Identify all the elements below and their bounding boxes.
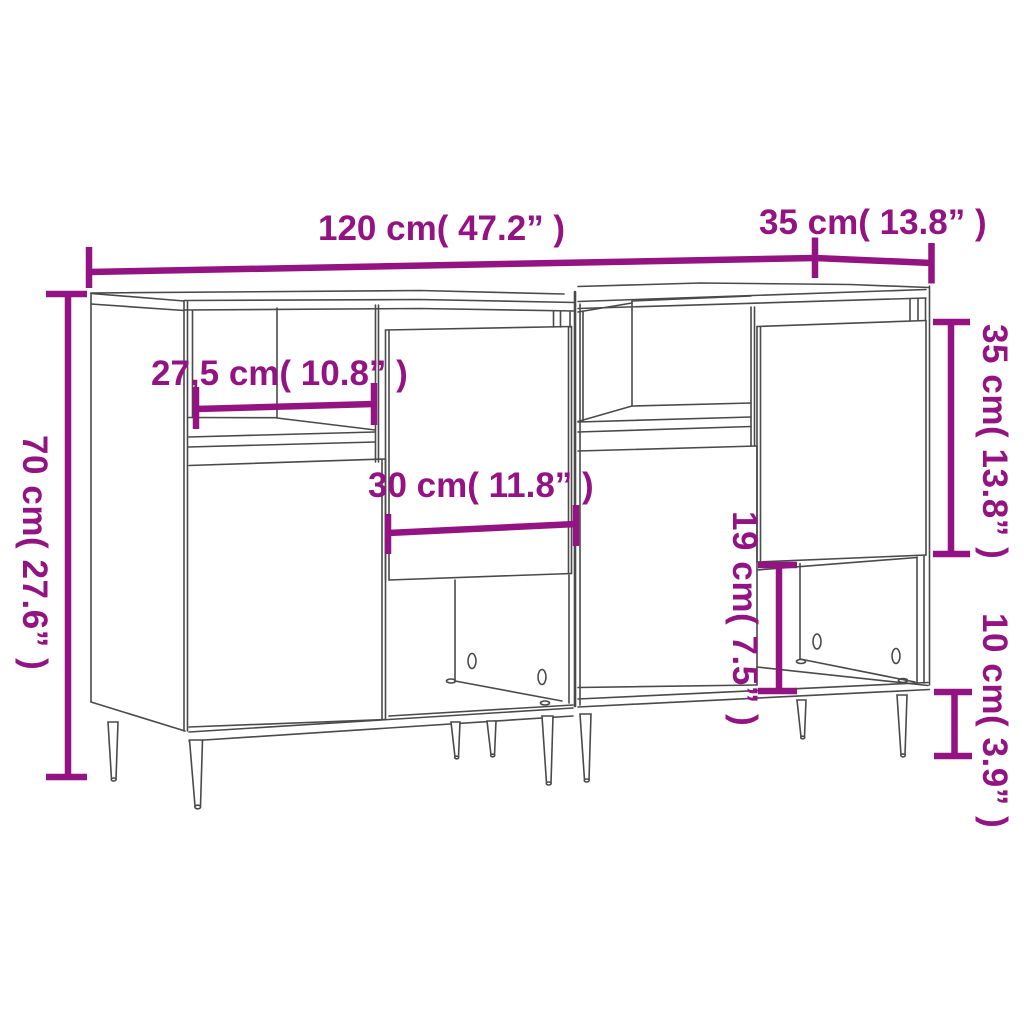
svg-text:35 cm( 13.8” ): 35 cm( 13.8” ) xyxy=(759,203,987,242)
svg-text:35 cm( 13.8” ): 35 cm( 13.8” ) xyxy=(975,324,1014,559)
svg-text:19 cm( 7.5” ): 19 cm( 7.5” ) xyxy=(725,511,764,726)
svg-text:10 cm( 3.9” ): 10 cm( 3.9” ) xyxy=(975,613,1014,828)
svg-text:70 cm( 27.6” ): 70 cm( 27.6” ) xyxy=(15,435,54,670)
svg-text:30 cm( 11.8” ): 30 cm( 11.8” ) xyxy=(368,466,594,505)
svg-text:27,5 cm( 10.8” ): 27,5 cm( 10.8” ) xyxy=(151,354,408,393)
svg-text:120 cm( 47.2” ): 120 cm( 47.2” ) xyxy=(318,209,565,248)
